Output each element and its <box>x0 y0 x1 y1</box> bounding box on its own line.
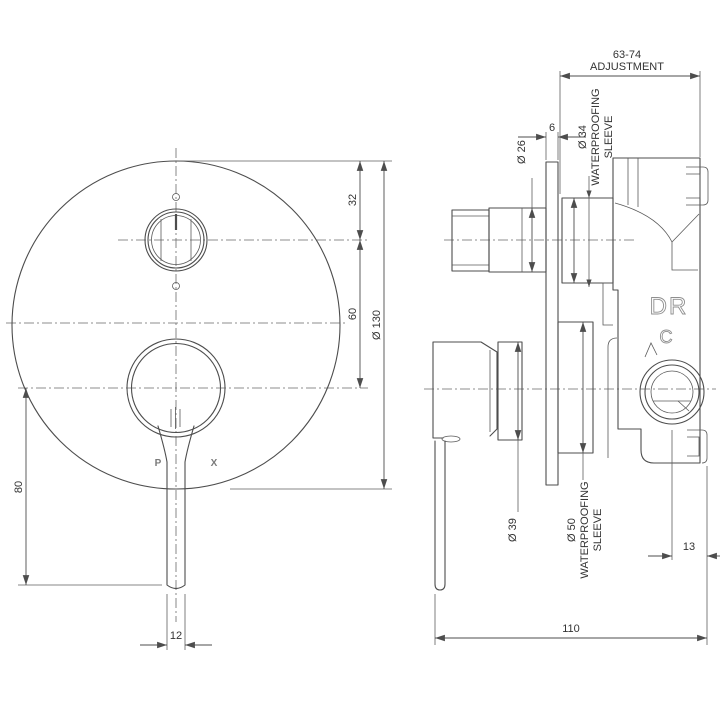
label-upper-sleeve-word1: WATERPROOFING <box>590 88 602 185</box>
body-cone <box>615 203 698 270</box>
clip-bottom-inner <box>687 437 699 456</box>
dim-body-depth: 110 <box>562 623 580 635</box>
brand-letter-right: X <box>211 458 218 469</box>
body-cone-diagonal <box>672 214 699 242</box>
dim-hub-diameter: Ø 39 <box>507 518 519 542</box>
dim-outlet-offset: 13 <box>683 541 695 553</box>
outlet-port-outer <box>640 360 704 424</box>
handle-lever-side <box>435 441 445 590</box>
drawing-canvas: P X 32 60 Ø 130 80 12 Ø 26 <box>0 0 720 720</box>
lower-sleeve <box>558 322 593 453</box>
dim-adjustment-word: ADJUSTMENT <box>590 61 664 73</box>
dim-plate-to-diverter: 32 <box>347 194 359 206</box>
label-upper-sleeve-word2: SLEEVE <box>603 116 615 159</box>
leader-34-arrow-top <box>586 191 591 199</box>
clip-top-outer <box>686 167 708 205</box>
dim-handle-drop: 80 <box>13 481 25 493</box>
dim-plate-thickness: 6 <box>549 122 555 134</box>
dim-knob-diameter: Ø 26 <box>516 140 528 164</box>
handle-escutcheon-side <box>433 342 497 438</box>
clip-bottom-outer <box>687 430 707 463</box>
upper-sleeve <box>562 198 613 283</box>
body-mark-c: C <box>660 327 673 347</box>
body-tab <box>645 343 657 357</box>
side-view: Ø 26 6 63-74 ADJUSTMENT Ø 34 WATERPROOFI… <box>424 49 720 645</box>
dim-diverter-to-handle: 60 <box>347 308 359 320</box>
clip-top-inner <box>686 174 700 198</box>
dim-adjustment-value: 63-74 <box>613 49 641 61</box>
label-lower-sleeve-word2: SLEEVE <box>592 509 604 552</box>
knob-knurl <box>452 210 489 271</box>
front-view: P X 32 60 Ø 130 80 12 <box>6 148 392 650</box>
dim-lever-width: 12 <box>170 630 182 642</box>
brand-letter-left: P <box>155 458 162 469</box>
body-step-left <box>603 283 613 325</box>
plate-edge <box>546 162 558 485</box>
technical-drawing: P X 32 60 Ø 130 80 12 Ø 26 <box>0 0 720 720</box>
label-lower-sleeve-word1: WATERPROOFING <box>579 481 591 578</box>
outlet-port-mid <box>645 365 699 419</box>
label-upper-sleeve-diameter: Ø 34 <box>577 125 589 149</box>
body-mark-dr: DR <box>650 293 689 320</box>
cartridge-housing-left <box>608 338 617 458</box>
outlet-port-inner <box>651 371 693 413</box>
dim-plate-diameter: Ø 130 <box>371 310 383 340</box>
label-lower-sleeve-diameter: Ø 50 <box>566 518 578 542</box>
